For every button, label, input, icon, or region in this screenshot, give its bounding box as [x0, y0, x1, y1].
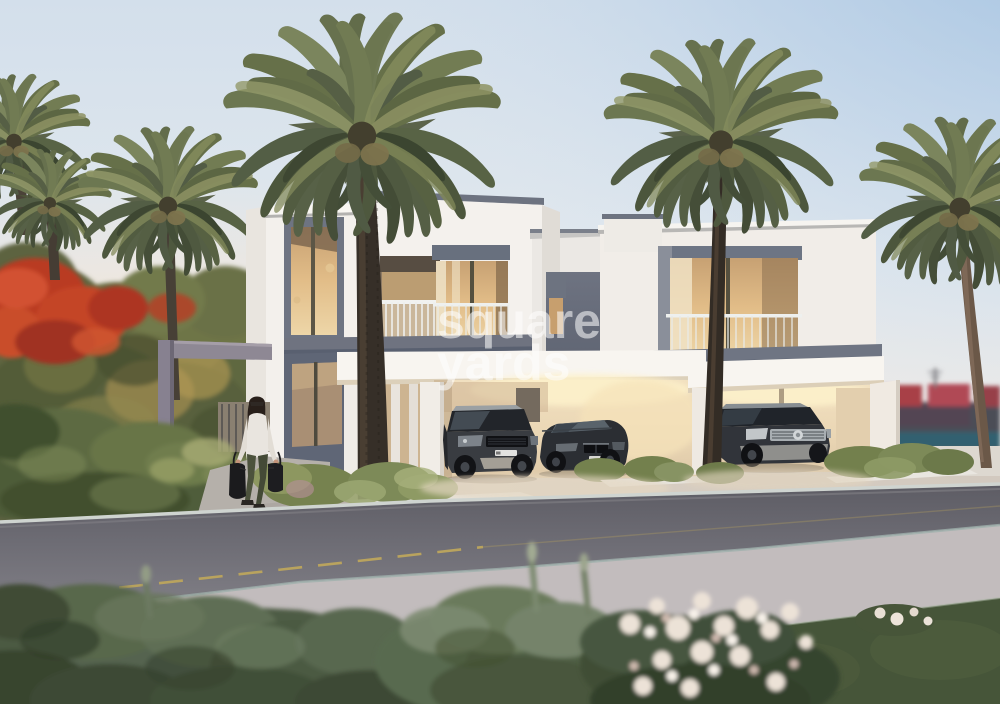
- svg-text:yards: yards: [437, 335, 570, 391]
